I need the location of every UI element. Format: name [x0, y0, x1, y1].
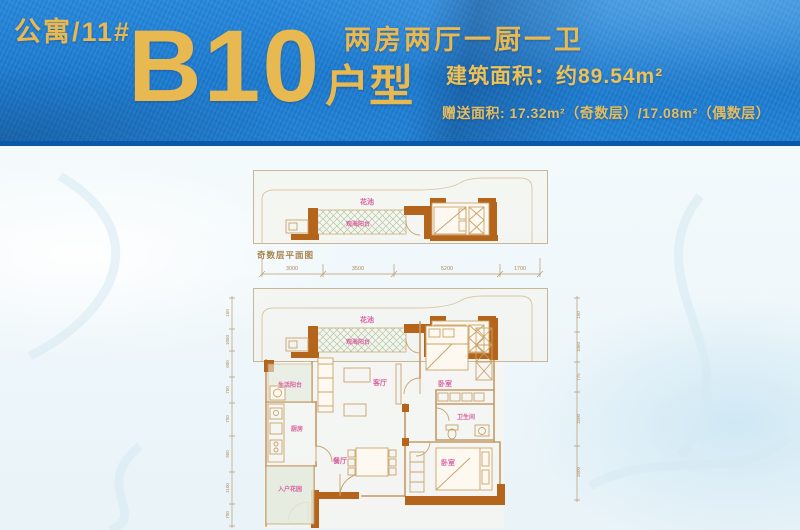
odd-floor-plan: 花池 观海阳台 奇数层平面图 3000 3500 5200 1700 [254, 171, 548, 278]
odd-plan-dimensions: 3000 3500 5200 1700 [259, 258, 543, 277]
floorplan-drawing: 花池 观海阳台 奇数层平面图 3000 3500 5200 1700 花池 观海… [0, 146, 800, 530]
left-dimension-line: 150 1050 600 750 750 950 1100 700 [225, 296, 235, 528]
header-band: 公寓/11# B10 户型 两房两厅一厨一卫 建筑面积：约89.54m² 赠送面… [0, 0, 800, 146]
svg-text:700: 700 [225, 511, 230, 519]
svg-text:1100: 1100 [225, 483, 230, 493]
svg-text:750: 750 [225, 386, 230, 394]
entry-garden-label: 入户花园 [277, 485, 302, 493]
living-room-label: 客厅 [372, 378, 387, 387]
svg-text:950: 950 [225, 450, 230, 458]
dim-5200: 5200 [441, 266, 453, 272]
built-area: 建筑面积：约89.54m² [446, 60, 663, 90]
odd-plan-caption: 奇数层平面图 [257, 250, 314, 260]
svg-text:775: 775 [576, 373, 581, 381]
building-label: 公寓/11# [14, 10, 131, 49]
kitchen-label: 厨房 [291, 425, 303, 433]
odd-flower-bed-label: 花池 [360, 197, 374, 206]
sofa-icon [318, 364, 333, 406]
life-balcony: 生活阳台 [268, 364, 312, 402]
odd-sea-balcony-label: 观海阳台 [346, 220, 370, 228]
svg-text:150: 150 [225, 309, 230, 317]
dim-3000: 3000 [286, 266, 298, 272]
svg-text:1500: 1500 [576, 413, 581, 424]
layout-description: 两房两厅一厨一卫 [344, 18, 584, 57]
unit-number: B10 [128, 20, 321, 114]
bathroom-label: 卫生间 [457, 413, 475, 421]
svg-text:1050: 1050 [225, 334, 230, 345]
bedroom-bottom-label: 卧室 [441, 458, 455, 467]
entry-garden: 入户花园 [266, 466, 314, 524]
right-dimension-line: 150 1060 775 1500 2600 [574, 296, 581, 502]
flyer-page: 公寓/11# B10 户型 两房两厅一厨一卫 建筑面积：约89.54m² 赠送面… [0, 0, 800, 530]
svg-text:750: 750 [225, 415, 230, 423]
dining-room-label: 餐厅 [332, 456, 347, 465]
main-flower-bed-label: 花池 [360, 315, 374, 324]
dim-1700: 1700 [514, 266, 526, 272]
svg-text:600: 600 [225, 360, 230, 368]
bedroom-top-label: 卧室 [438, 379, 452, 388]
unit-type-suffix: 户型 [325, 65, 413, 114]
svg-text:2600: 2600 [576, 466, 581, 477]
main-sea-balcony-label: 观海阳台 [346, 338, 370, 346]
dim-3500: 3500 [352, 266, 364, 272]
main-floor-plan: 花池 观海阳台 [225, 289, 581, 529]
bonus-area: 赠送面积: 17.32m²（奇数层）/17.08m²（偶数层） [442, 103, 770, 123]
life-balcony-label: 生活阳台 [278, 381, 302, 389]
svg-text:1060: 1060 [576, 341, 581, 352]
svg-text:150: 150 [576, 311, 581, 319]
dining-table-icon [356, 448, 388, 476]
floorplan-area: 花池 观海阳台 奇数层平面图 3000 3500 5200 1700 花池 观海… [0, 146, 800, 530]
